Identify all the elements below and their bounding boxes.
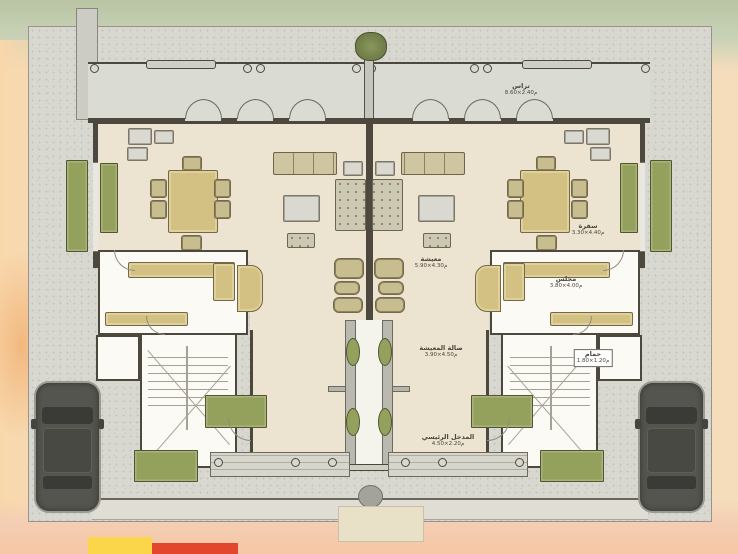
dining-chair bbox=[182, 156, 202, 171]
kitchen-sink-icon bbox=[586, 128, 610, 145]
fence-post-icon bbox=[641, 64, 650, 73]
dining-chair bbox=[181, 235, 202, 251]
car-icon bbox=[36, 383, 99, 511]
label-entrance: المدخل الرئيسي 4.50×2.20م bbox=[422, 434, 475, 448]
wall bbox=[368, 118, 413, 123]
porch-column-icon bbox=[214, 458, 223, 467]
armchair bbox=[418, 195, 455, 222]
planter bbox=[100, 163, 118, 233]
terrace-railing bbox=[146, 60, 216, 69]
wall bbox=[325, 118, 370, 123]
label-terrace: تراس 8.60×2.40م bbox=[505, 83, 538, 97]
planter bbox=[540, 450, 604, 482]
kitchen-sink-icon bbox=[128, 128, 152, 145]
dining-chair bbox=[150, 200, 167, 219]
kitchen-stove-icon bbox=[154, 130, 174, 144]
label-hall: صالة المعيشة 3.90×4.50م bbox=[419, 345, 462, 359]
floor-cushion bbox=[374, 258, 404, 279]
dining-chair bbox=[536, 235, 557, 251]
label-living: معيشة 5.90×4.30م bbox=[415, 256, 448, 270]
bath-room bbox=[96, 335, 140, 381]
car-rear-window bbox=[43, 476, 92, 489]
dining-chair bbox=[571, 200, 588, 219]
wall bbox=[273, 118, 289, 123]
floor-plan: تراس 8.60×2.40م سفرة 3.30×4.40م معيشة 5.… bbox=[0, 0, 738, 554]
stair-divider bbox=[186, 346, 188, 430]
red-strip bbox=[152, 543, 238, 554]
fence-post-icon bbox=[256, 64, 265, 73]
dining-chair bbox=[214, 200, 231, 219]
wall bbox=[221, 118, 237, 123]
car-roof bbox=[647, 428, 696, 473]
porch-column-icon bbox=[328, 458, 337, 467]
sofa bbox=[273, 152, 337, 175]
kitchen-counter-icon bbox=[590, 147, 611, 161]
sofa bbox=[401, 152, 465, 175]
dining-chair bbox=[507, 179, 524, 198]
car-rear-window bbox=[647, 476, 696, 489]
car-mirror bbox=[31, 419, 37, 429]
terrace-railing bbox=[522, 60, 592, 69]
planter bbox=[620, 163, 638, 233]
kitchen-stove-icon bbox=[564, 130, 584, 144]
tv-cabinet bbox=[372, 179, 403, 231]
armchair bbox=[283, 195, 320, 222]
tv-cabinet bbox=[335, 179, 366, 231]
majlis-sofa bbox=[213, 263, 235, 301]
floor-cushion bbox=[334, 258, 364, 279]
porch-column-icon bbox=[291, 458, 300, 467]
kitchen-counter-icon bbox=[127, 147, 148, 161]
label-dining: سفرة 3.30×4.40م bbox=[572, 223, 605, 237]
tree-icon bbox=[355, 32, 387, 61]
unit-right bbox=[368, 120, 650, 475]
dining-table bbox=[168, 170, 218, 233]
window bbox=[93, 162, 98, 252]
fence-post-icon bbox=[470, 64, 479, 73]
car-mirror bbox=[702, 419, 708, 429]
wall bbox=[449, 118, 465, 123]
wall bbox=[88, 118, 185, 123]
porch-column-icon bbox=[401, 458, 410, 467]
fence-post-icon bbox=[352, 64, 361, 73]
car-mirror bbox=[98, 419, 104, 429]
dining-chair bbox=[214, 179, 231, 198]
floor-cushion bbox=[333, 297, 363, 313]
planter bbox=[134, 450, 198, 482]
side-table bbox=[343, 161, 363, 176]
dining-chair bbox=[150, 179, 167, 198]
majlis-sofa bbox=[503, 263, 525, 301]
ottoman bbox=[287, 233, 315, 248]
window bbox=[640, 162, 645, 252]
porch-column-icon bbox=[438, 458, 447, 467]
label-majlis: مجلس 3.80×4.00م bbox=[550, 276, 583, 290]
yellow-strip bbox=[88, 537, 152, 554]
floor-cushion bbox=[375, 297, 405, 313]
dining-table bbox=[520, 170, 570, 233]
fence-post-icon bbox=[483, 64, 492, 73]
unit-left bbox=[88, 120, 370, 475]
car-windshield bbox=[646, 407, 697, 424]
ottoman bbox=[423, 233, 451, 248]
car-windshield bbox=[42, 407, 93, 424]
dining-chair bbox=[507, 200, 524, 219]
car-roof bbox=[43, 428, 92, 473]
side-table bbox=[375, 161, 395, 176]
floor-cushion bbox=[378, 281, 404, 295]
dining-chair bbox=[536, 156, 556, 171]
wall bbox=[553, 118, 650, 123]
stair-divider bbox=[550, 346, 552, 430]
manhole-icon bbox=[358, 485, 383, 508]
fence-post-icon bbox=[243, 64, 252, 73]
fence-post-icon bbox=[90, 64, 99, 73]
floor-cushion bbox=[334, 281, 360, 295]
entry-paving-pad bbox=[338, 506, 424, 542]
majlis-armchair bbox=[475, 265, 501, 312]
label-bath: حمام 1.80×1.20م bbox=[574, 349, 613, 367]
porch-column-icon bbox=[515, 458, 524, 467]
planter bbox=[650, 160, 672, 252]
dining-chair bbox=[571, 179, 588, 198]
majlis-armchair bbox=[237, 265, 263, 312]
planter bbox=[66, 160, 88, 252]
wall bbox=[501, 118, 517, 123]
